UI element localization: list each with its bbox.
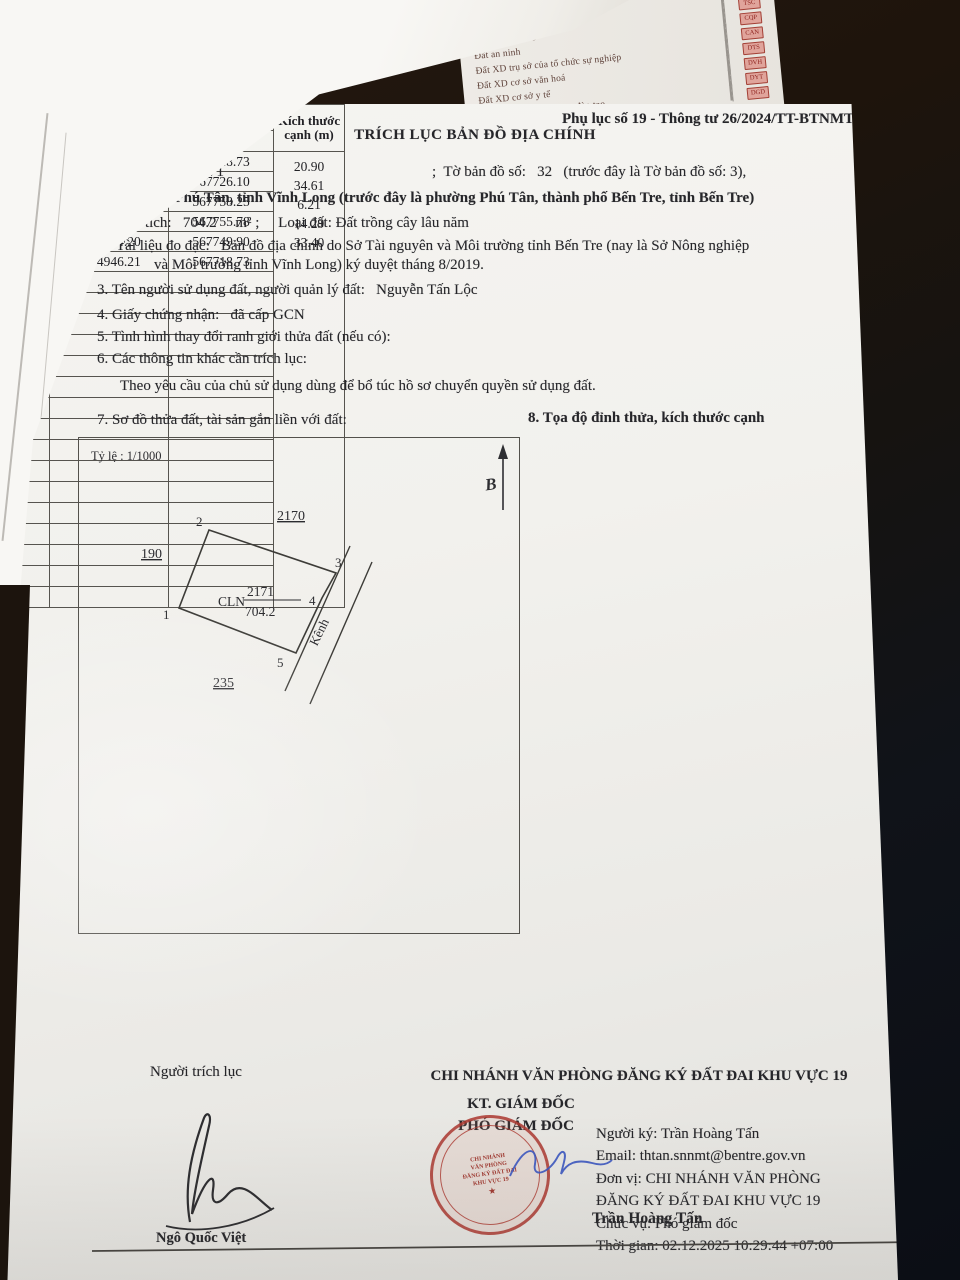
landtype-code-badge: DGD: [746, 85, 769, 99]
page-title: TRÍCH LỤC BẢN ĐỒ ĐỊA CHÍNH: [284, 127, 666, 144]
vertex-label-2: 2: [196, 514, 203, 529]
section8-heading: 8. Tọa độ đỉnh thửa, kích thước cạnh: [528, 410, 765, 427]
edge-length: 6.21: [274, 197, 344, 213]
deputy-name: Trần Hoàng Tấn: [592, 1210, 703, 1228]
edge-length: 20.90: [274, 159, 344, 175]
extractor-signature-ink: [154, 1104, 284, 1236]
edge-length: 33.40: [274, 235, 344, 251]
deputy-signature-ink: [504, 1132, 614, 1198]
document-page: Phụ lục số 19 - Thông tư 26/2024/TT-BTNM…: [4, 104, 898, 1280]
parcel-number-label: 2171: [247, 584, 274, 599]
field-address: Phường Phú Tân, tỉnh Vĩnh Long (trước đâ…: [120, 190, 754, 207]
office-name: CHI NHÁNH VĂN PHÒNG ĐĂNG KÝ ĐẤT ĐAI KHU …: [404, 1068, 874, 1085]
edge-length: 14.29: [274, 216, 344, 232]
extractor-label: Người trích lục: [150, 1064, 242, 1081]
field-boundary-changes: 5. Tình hình thay đổi ranh giới thửa đất…: [97, 329, 391, 346]
north-arrow-icon: B: [483, 444, 508, 510]
svg-text:B: B: [483, 474, 498, 495]
field-mapsheet-number: ; Tờ bản đồ số: 32 (trước đây là Tờ bản …: [432, 164, 746, 181]
field-purpose-note: Theo yêu cầu của chủ sử dụng dùng để bổ …: [120, 378, 596, 395]
parcel-area-label: 704.2: [245, 604, 275, 619]
canal-label: Kênh: [306, 616, 332, 648]
edge-length-cell: 20.90 34.61 6.21 14.29 33.40: [274, 152, 345, 608]
vertex-label-1: 1: [163, 607, 170, 622]
edge-length: 34.61: [274, 178, 344, 194]
page-bottom-edge: [4, 1232, 898, 1258]
form-reference: Phụ lục số 19 - Thông tư 26/2024/TT-BTNM…: [562, 111, 854, 128]
parcel-type-code: CLN: [218, 594, 245, 609]
seal-star-icon: ★: [488, 1186, 497, 1196]
neighbor-parcel-bottom: 235: [213, 676, 234, 691]
on-behalf-title: KT. GIÁM ĐỐC: [404, 1096, 638, 1113]
map-scale-label: Tỷ lệ : 1/1000: [91, 449, 161, 463]
vertex-label-5: 5: [277, 655, 284, 670]
neighbor-parcel-left: 190: [141, 547, 162, 562]
field-survey-doc-line1: Tài liệu đo đạc: Bản đồ địa chính do Sở …: [116, 238, 749, 255]
